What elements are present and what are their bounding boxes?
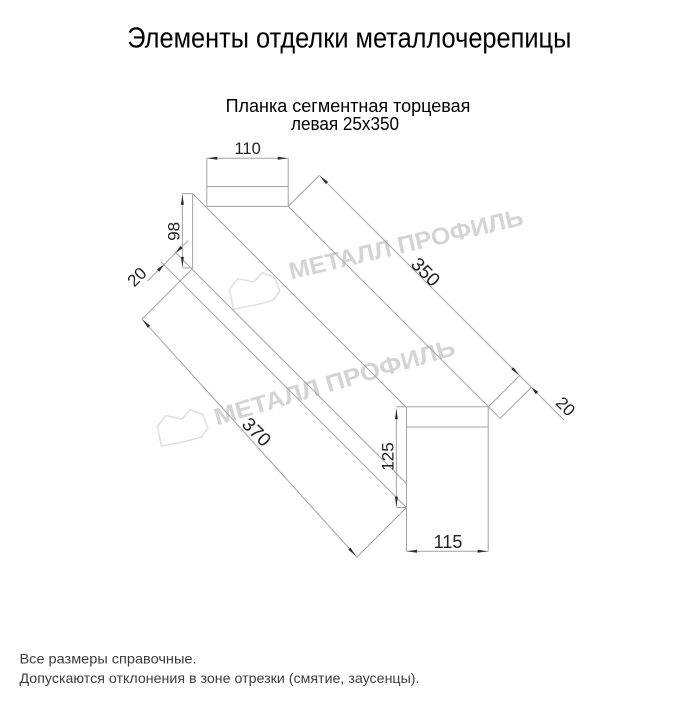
svg-text:110: 110 <box>234 140 260 158</box>
svg-text:125: 125 <box>379 442 398 470</box>
svg-text:левая 25х350: левая 25х350 <box>291 114 399 134</box>
svg-text:115: 115 <box>434 532 463 552</box>
svg-text:Элементы отделки металлочерепи: Элементы отделки металлочерепицы <box>127 22 571 54</box>
svg-text:Допускаются отклонения в зоне: Допускаются отклонения в зоне отрезки (с… <box>20 670 420 686</box>
svg-text:98: 98 <box>164 222 183 241</box>
svg-text:Все размеры справочные.: Все размеры справочные. <box>20 650 197 666</box>
